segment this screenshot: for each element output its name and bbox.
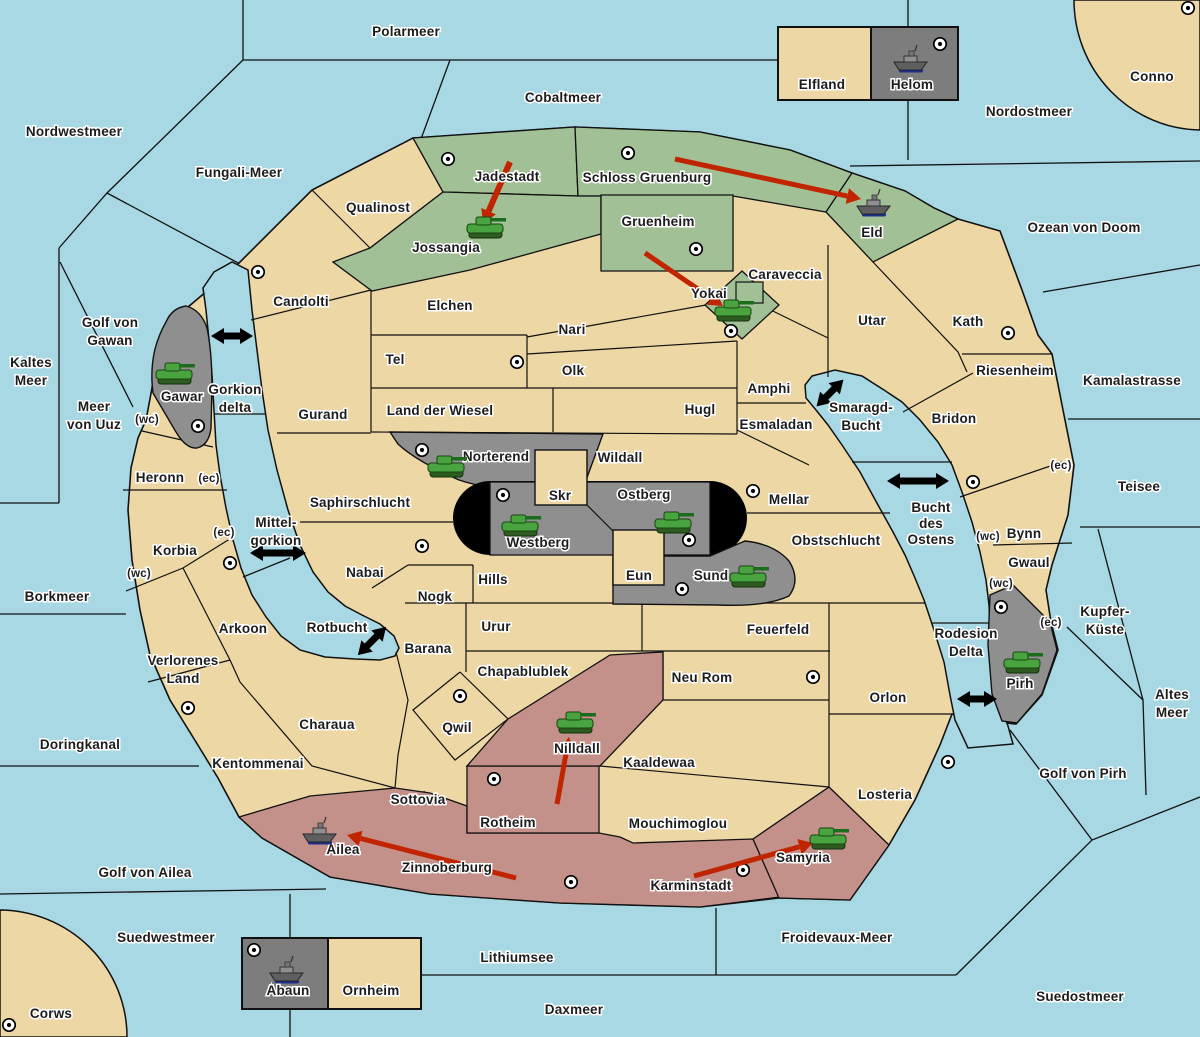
- supply-center-dot: [3, 1019, 15, 1031]
- supply-center-dot: [488, 773, 500, 785]
- label-losteria: Losteria: [858, 787, 912, 802]
- supply-center-dot: [807, 671, 819, 683]
- label-candolti: Candolti: [273, 294, 329, 309]
- label-zinnoberburg: Zinnoberburg: [402, 860, 492, 875]
- label-arkoon: Arkoon: [219, 621, 267, 636]
- label-qualinost: Qualinost: [346, 200, 410, 215]
- box-abaun-ornheim-right[interactable]: [328, 938, 421, 1009]
- label-caraveccia: Caraveccia: [748, 267, 822, 282]
- label-nogk: Nogk: [418, 589, 453, 604]
- label-hills: Hills: [478, 572, 508, 587]
- supply-center-dot: [416, 444, 428, 456]
- label-karminstadt: Karminstadt: [651, 878, 732, 893]
- coast-tag: (wc): [135, 414, 159, 426]
- supply-center-dot: [683, 534, 695, 546]
- label-mouchimoglou: Mouchimoglou: [629, 816, 727, 831]
- label-orlon: Orlon: [870, 690, 907, 705]
- label-nordostmeer: Nordostmeer: [986, 104, 1073, 119]
- label-sottovia: Sottovia: [391, 792, 446, 807]
- label-eld: Eld: [861, 225, 883, 240]
- label-jadestadt: Jadestadt: [475, 169, 540, 184]
- label-tel: Tel: [385, 352, 404, 367]
- label-qwil: Qwil: [442, 720, 471, 735]
- label-abaun: Abaun: [267, 983, 310, 998]
- label-saphirschlucht: Saphirschlucht: [310, 495, 411, 510]
- label-utar: Utar: [858, 313, 886, 328]
- game-map: PolarmeerCobaltmeerNordwestmeerFungali-M…: [0, 0, 1200, 1037]
- label-heronn: Heronn: [136, 470, 184, 485]
- label-bynn: Bynn: [1007, 526, 1042, 541]
- label-gawar: Gawar: [161, 389, 204, 404]
- label-kaaldewaa: Kaaldewaa: [623, 755, 695, 770]
- yokai-square[interactable]: [736, 282, 763, 303]
- supply-center-dot: [934, 38, 946, 50]
- label-conno: Conno: [1130, 69, 1174, 84]
- label-daxmeer: Daxmeer: [545, 1002, 604, 1017]
- supply-center-dot: [1002, 327, 1014, 339]
- supply-center-dot: [454, 690, 466, 702]
- label-amphi: Amphi: [748, 381, 791, 396]
- label-skr: Skr: [549, 488, 572, 503]
- coast-tag: (ec): [198, 473, 219, 485]
- label-ornheim: Ornheim: [343, 983, 400, 998]
- label-yokai: Yokai: [691, 286, 727, 301]
- label-gruenheim: Gruenheim: [621, 214, 694, 229]
- label-nordwestmeer: Nordwestmeer: [26, 124, 123, 139]
- supply-center-dot: [942, 756, 954, 768]
- label-korbia: Korbia: [153, 543, 197, 558]
- label-elfland: Elfland: [799, 77, 845, 92]
- coast-tag: (ec): [1040, 617, 1061, 629]
- label-gurand: Gurand: [298, 407, 347, 422]
- label-sund: Sund: [694, 568, 729, 583]
- supply-center-dot: [995, 601, 1007, 613]
- coast-tag: (wc): [127, 568, 151, 580]
- supply-center-dot: [192, 420, 204, 432]
- green-region-3[interactable]: [601, 195, 733, 271]
- label-feuerfeld: Feuerfeld: [747, 622, 810, 637]
- label-borkmeer: Borkmeer: [25, 589, 90, 604]
- label-norterend: Norterend: [463, 449, 529, 464]
- label-nilldall: Nilldall: [554, 741, 600, 756]
- label-suedwestmeer: Suedwestmeer: [117, 930, 215, 945]
- label-nabai: Nabai: [346, 565, 384, 580]
- label-barana: Barana: [405, 641, 452, 656]
- label-ostberg: Ostberg: [617, 487, 670, 502]
- label-esmaladan: Esmaladan: [739, 417, 812, 432]
- supply-center-dot: [565, 876, 577, 888]
- coast-tag: (wc): [976, 531, 1000, 543]
- coast-tag: (ec): [1050, 460, 1071, 472]
- coast-tag: (wc): [989, 578, 1013, 590]
- label-golf-von-ailea: Golf von Ailea: [98, 865, 191, 880]
- supply-center-dot: [747, 485, 759, 497]
- supply-center-dot: [442, 153, 454, 165]
- label-obstschlucht: Obstschlucht: [792, 533, 881, 548]
- label-teisee: Teisee: [1118, 479, 1161, 494]
- label-urur: Urur: [481, 619, 511, 634]
- label-hugl: Hugl: [685, 402, 716, 417]
- label-kamalastrasse: Kamalastrasse: [1083, 373, 1181, 388]
- label-golf-von-pirh: Golf von Pirh: [1039, 766, 1126, 781]
- label-ailea: Ailea: [326, 842, 360, 857]
- label-fungali-meer: Fungali-Meer: [196, 165, 283, 180]
- supply-center-dot: [725, 325, 737, 337]
- label-polarmeer: Polarmeer: [372, 24, 440, 39]
- label-doringkanal: Doringkanal: [40, 737, 120, 752]
- label-suedostmeer: Suedostmeer: [1036, 989, 1124, 1004]
- label-mellar: Mellar: [769, 492, 810, 507]
- label-neu-rom: Neu Rom: [672, 670, 733, 685]
- label-lithiumsee: Lithiumsee: [480, 950, 554, 965]
- map-canvas[interactable]: PolarmeerCobaltmeerNordwestmeerFungali-M…: [0, 0, 1200, 1037]
- label-kath: Kath: [953, 314, 984, 329]
- label-chapablublek: Chapablublek: [478, 664, 569, 679]
- supply-center-dot: [967, 476, 979, 488]
- label-riesenheim: Riesenheim: [976, 363, 1054, 378]
- supply-center-dot: [1182, 2, 1194, 14]
- label-rotbucht: Rotbucht: [307, 620, 368, 635]
- supply-center-dot: [622, 147, 634, 159]
- label-wildall: Wildall: [598, 450, 643, 465]
- supply-center-dot: [182, 702, 194, 714]
- label-rotheim: Rotheim: [480, 815, 535, 830]
- label-charaua: Charaua: [299, 717, 355, 732]
- supply-center-dot: [497, 489, 509, 501]
- supply-center-dot: [248, 944, 260, 956]
- label-ozean-von-doom: Ozean von Doom: [1027, 220, 1140, 235]
- label-land-der-wiesel: Land der Wiesel: [387, 403, 493, 418]
- label-pirh: Pirh: [1006, 676, 1033, 691]
- supply-center-dot: [676, 583, 688, 595]
- label-corws: Corws: [30, 1006, 72, 1021]
- supply-center-dot: [416, 540, 428, 552]
- supply-center-dot: [690, 243, 702, 255]
- label-olk: Olk: [562, 363, 585, 378]
- label-eun: Eun: [626, 568, 652, 583]
- label-kentommenai: Kentommenai: [212, 756, 303, 771]
- supply-center-dot: [252, 266, 264, 278]
- label-schloss-gruenburg: Schloss Gruenburg: [583, 170, 712, 185]
- label-froidevaux-meer: Froidevaux-Meer: [781, 930, 893, 945]
- coast-tag: (ec): [213, 527, 234, 539]
- label-nari: Nari: [558, 322, 585, 337]
- label-elchen: Elchen: [427, 298, 472, 313]
- label-westberg: Westberg: [507, 535, 570, 550]
- label-cobaltmeer: Cobaltmeer: [525, 90, 602, 105]
- supply-center-dot: [511, 356, 523, 368]
- label-helom: Helom: [891, 77, 933, 92]
- label-jossangia: Jossangia: [412, 240, 480, 255]
- label-bridon: Bridon: [932, 411, 977, 426]
- label-samyria: Samyria: [776, 850, 830, 865]
- label-gwaul: Gwaul: [1008, 555, 1050, 570]
- supply-center-dot: [224, 557, 236, 569]
